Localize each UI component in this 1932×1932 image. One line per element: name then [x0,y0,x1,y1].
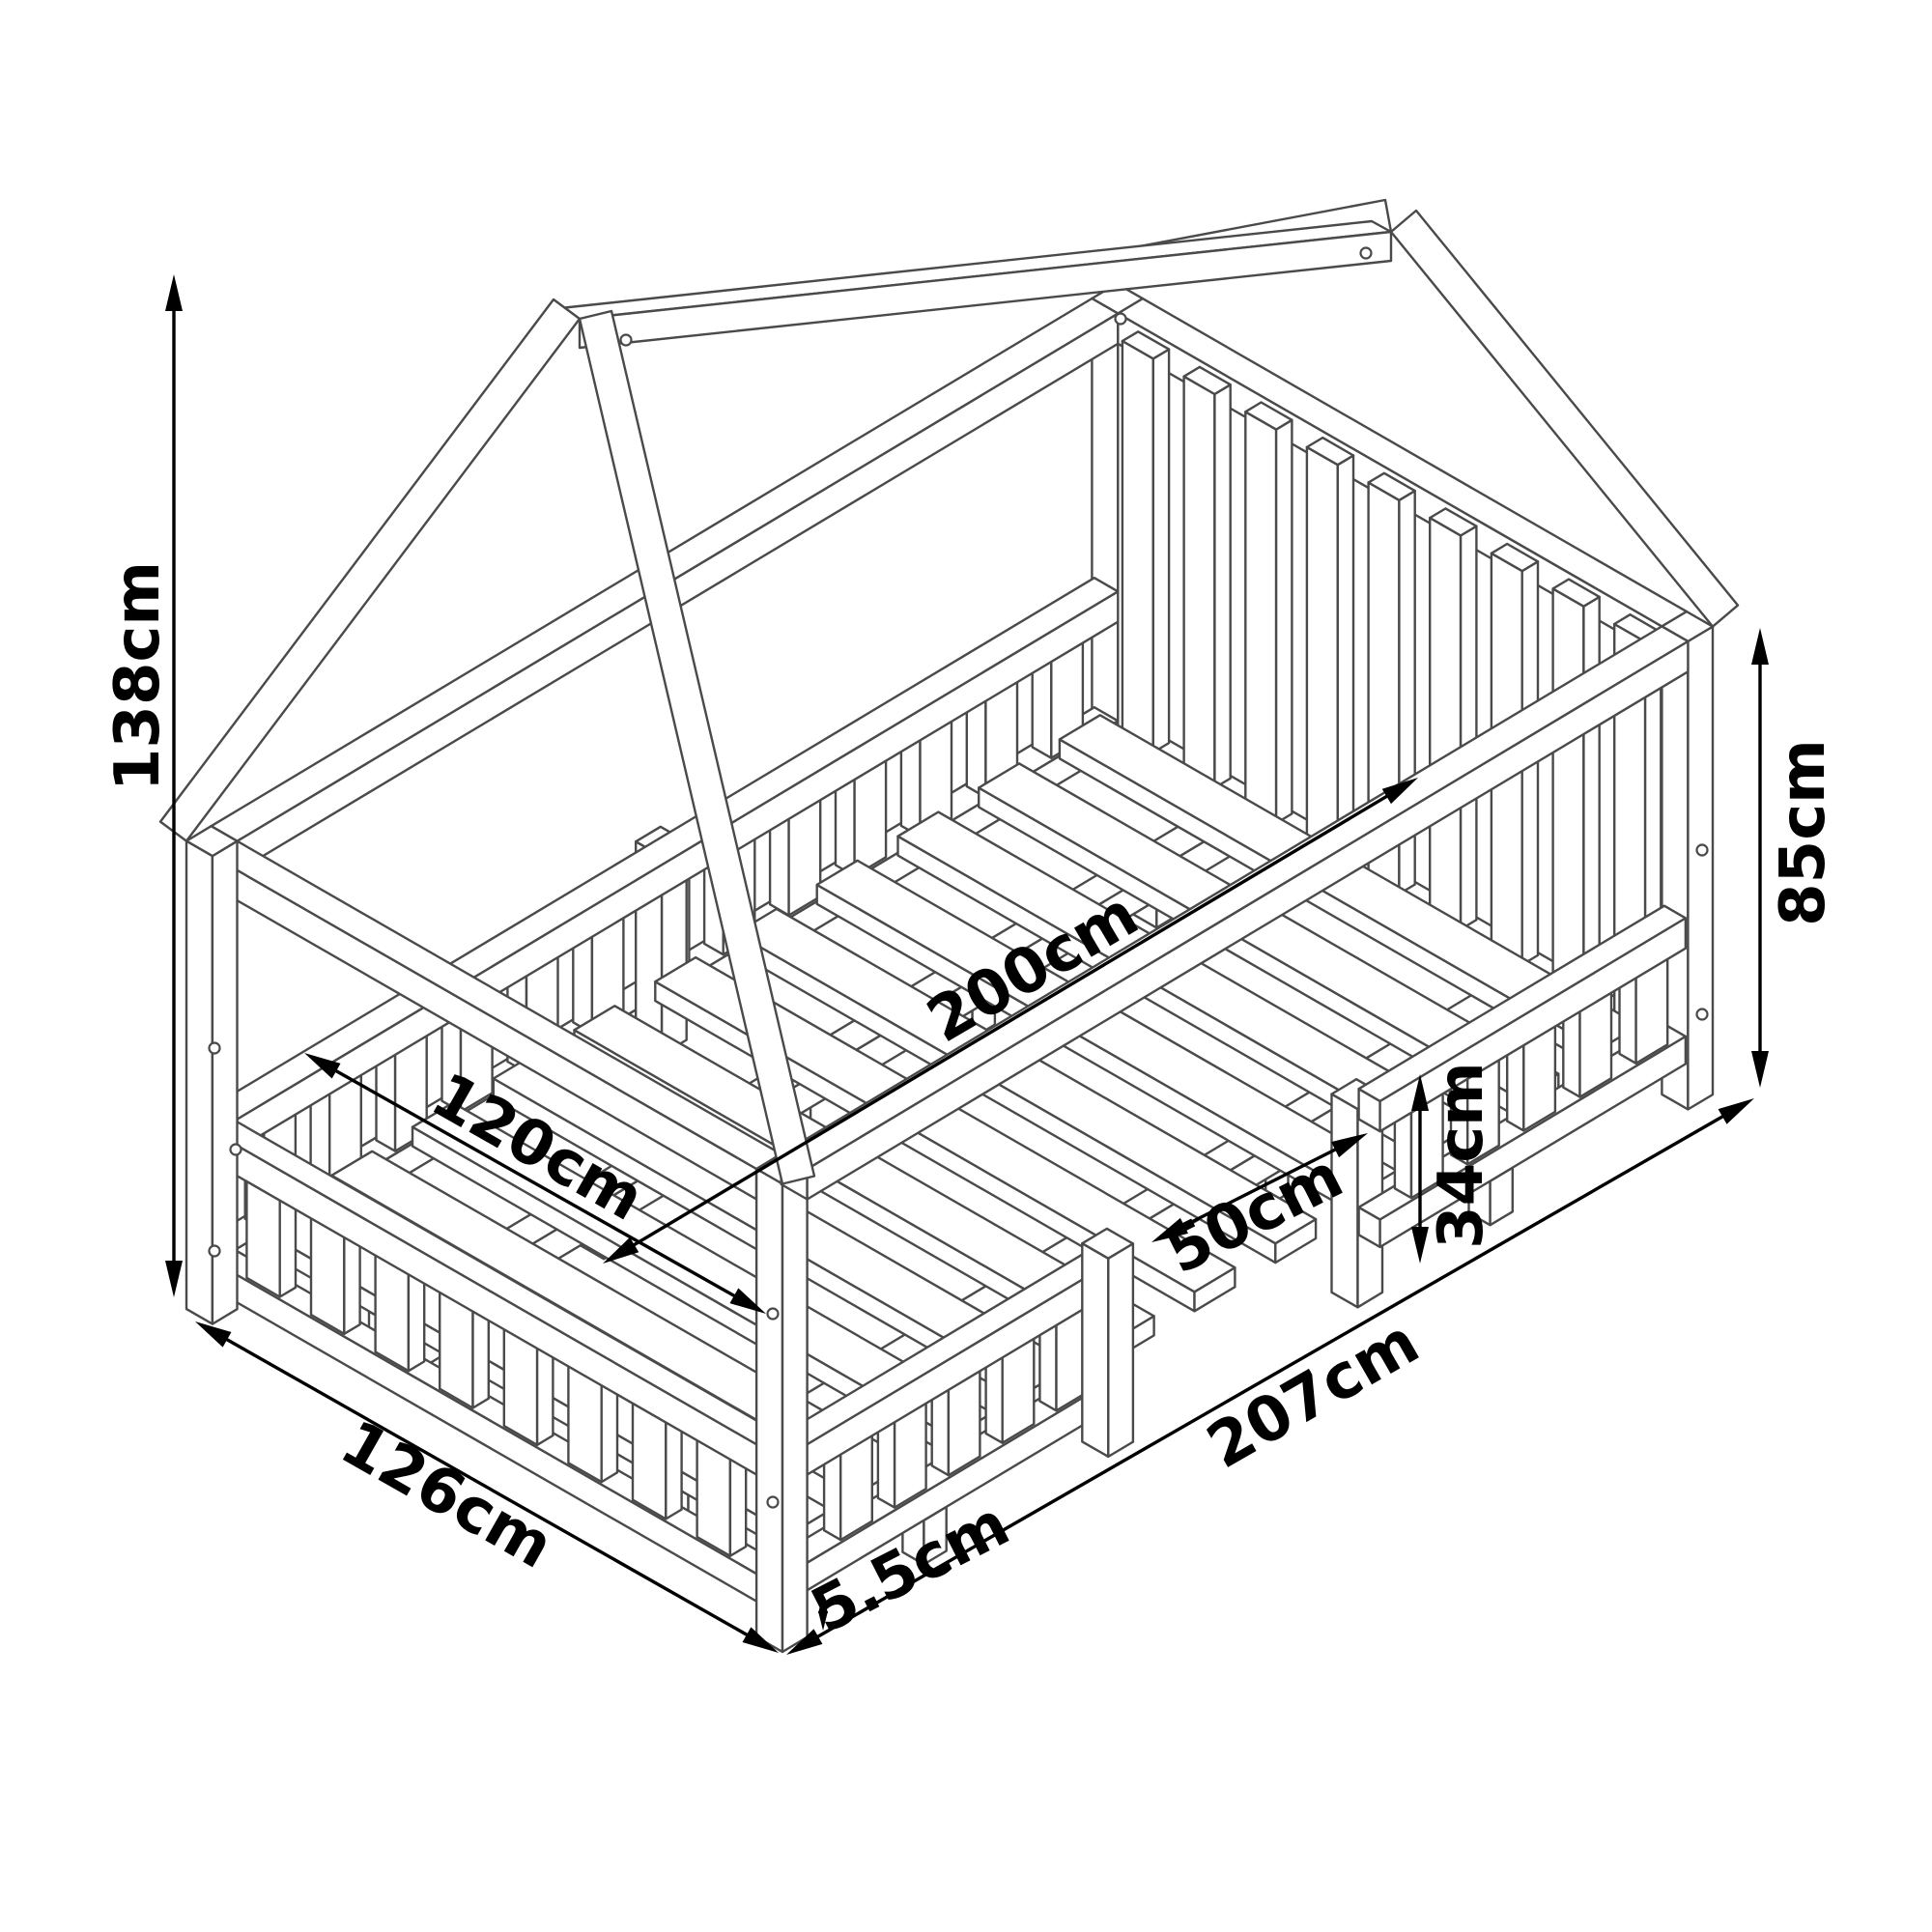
headboard-slat [1184,377,1215,788]
headboard-slat [1338,456,1353,859]
headboard-slat [1245,412,1276,823]
post-front [782,1169,808,1652]
screw-hole-icon [1697,845,1708,856]
dim-line-side-height-arrowhead [1751,628,1769,665]
headboard-slat [1276,420,1292,823]
screw-hole-icon [768,1309,779,1320]
post-front [756,1169,782,1652]
dim-line-outer-length-arrowhead [1719,1098,1754,1124]
headboard-slat [1583,597,1599,1000]
house-bed-dimension-diagram: 138cm 85cm 200cm 120cm 50cm 34cm 126cm 2… [0,0,1932,1932]
dim-line-total-height-arrowhead [165,1261,183,1297]
screw-hole-icon [210,1043,220,1054]
post-right [1688,627,1713,1110]
headboard-slat [1153,350,1169,753]
screw-hole-icon [768,1497,779,1508]
screw-hole-icon [1697,1009,1708,1020]
headboard-slat [1307,447,1338,859]
dim-label-side-height: 85cm [1768,739,1839,926]
headboard-slat [1122,341,1153,753]
headboard-slat [1430,518,1461,929]
screw-hole-icon [1116,314,1126,325]
headboard-slat [1214,384,1230,787]
dim-line-outer-width-arrowhead [195,1321,231,1348]
dim-label-total-height: 138cm [102,561,174,791]
screw-hole-icon [621,335,632,346]
dim-line-side-height-arrowhead [1751,1051,1769,1088]
headboard-slat [1461,526,1476,929]
screw-hole-icon [210,1246,220,1257]
headboard-slat [1553,588,1584,1000]
screw-hole-icon [1361,248,1372,259]
dim-label-rail-height: 34cm [1426,1062,1497,1249]
dim-line-total-height-arrowhead [165,274,183,311]
front-rail-end-post [1108,1243,1133,1457]
screw-hole-icon [231,1145,241,1155]
ridge-beam-front [580,232,1391,348]
front-rail-end-post [1082,1243,1108,1457]
dim-label-outer-length: 207cm [1196,1306,1431,1483]
